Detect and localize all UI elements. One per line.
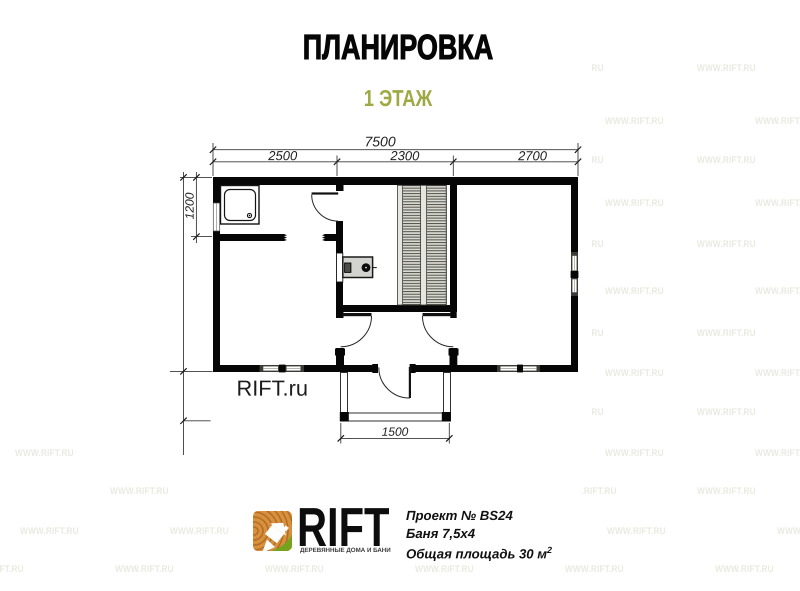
svg-text:2700: 2700 [517,148,548,163]
svg-text:2300: 2300 [389,148,420,163]
svg-text:1200: 1200 [183,192,197,219]
svg-text:7500: 7500 [364,133,395,149]
svg-text:1500: 1500 [382,425,409,439]
svg-text:2500: 2500 [267,148,298,163]
svg-text:RIFT.ru: RIFT.ru [236,376,307,401]
